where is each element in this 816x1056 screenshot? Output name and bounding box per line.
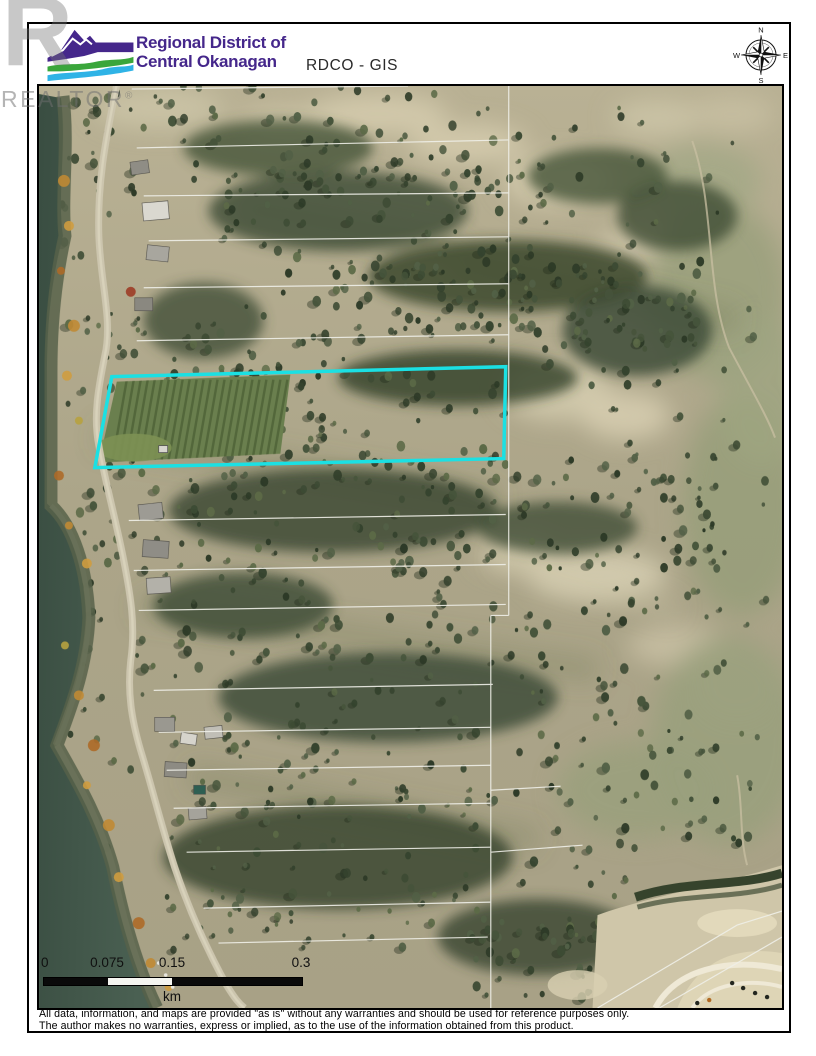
disclaimer-line1: All data, information, and maps are prov… [39, 1009, 629, 1021]
scale-unit-label: km [163, 989, 181, 1004]
scale-label-0075: 0.075 [90, 955, 124, 970]
compass-rose-icon: N E S W [732, 26, 790, 84]
rdco-logo-icon [44, 27, 136, 83]
compass-n-label: N [758, 26, 763, 35]
map-viewport: 0 0.075 0.15 0.3 km [37, 84, 784, 1010]
scale-bar: 0 0.075 0.15 0.3 km [41, 955, 341, 1007]
scale-bar-segments [43, 977, 303, 986]
orchard [96, 375, 290, 463]
compass-s-label: S [758, 76, 763, 84]
parcel-shed [159, 446, 168, 453]
scale-label-03: 0.3 [292, 955, 311, 970]
aerial-photo [39, 86, 782, 1008]
scale-label-0: 0 [41, 955, 49, 970]
rdco-logo-text: Regional District of Central Okanagan [136, 34, 286, 71]
disclaimer-line2: The author makes no warranties, express … [39, 1021, 629, 1033]
scale-label-015: 0.15 [159, 955, 185, 970]
logo-line2: Central Okanagan [136, 53, 286, 72]
compass-w-label: W [733, 51, 741, 60]
gis-map-page: Regional District of Central Okanagan RD… [0, 0, 816, 1056]
page-title: RDCO - GIS [306, 57, 398, 75]
logo-line1: Regional District of [136, 34, 286, 53]
disclaimer: All data, information, and maps are prov… [39, 1009, 629, 1032]
compass-e-label: E [783, 51, 788, 60]
